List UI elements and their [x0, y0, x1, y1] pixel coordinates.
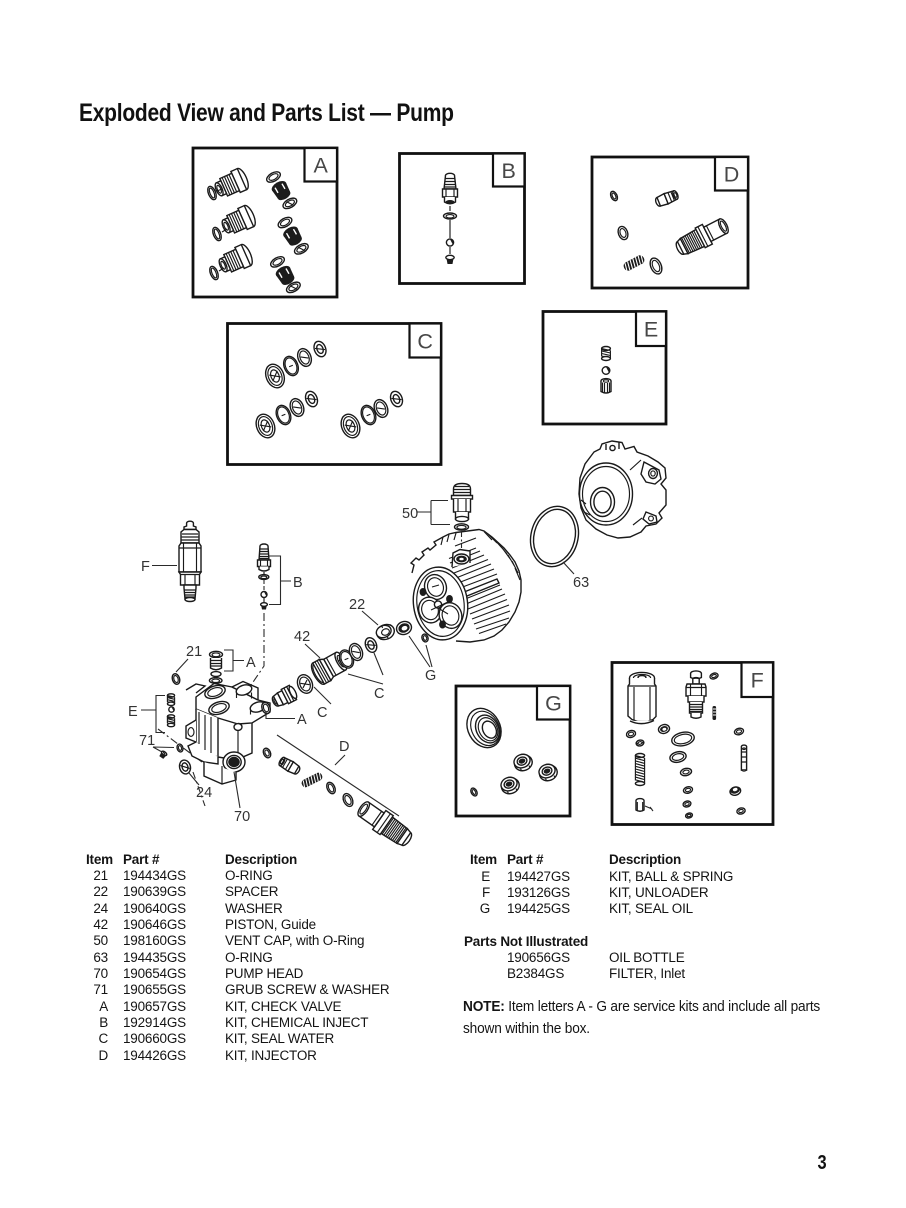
svg-text:E: E: [644, 318, 658, 342]
svg-text:A: A: [314, 154, 329, 178]
svg-text:B: B: [293, 575, 303, 591]
svg-text:50: 50: [402, 506, 418, 522]
svg-text:D: D: [724, 163, 740, 187]
svg-text:42: 42: [294, 629, 310, 645]
svg-text:A: A: [246, 655, 256, 671]
svg-text:F: F: [141, 559, 150, 575]
svg-text:C: C: [374, 686, 384, 702]
svg-text:22: 22: [349, 597, 365, 613]
svg-text:C: C: [317, 705, 327, 721]
svg-text:21: 21: [186, 644, 202, 660]
svg-text:B: B: [502, 159, 516, 183]
svg-text:70: 70: [234, 809, 250, 825]
svg-text:F: F: [751, 669, 764, 693]
svg-text:71: 71: [139, 733, 155, 749]
svg-text:24: 24: [196, 785, 212, 801]
svg-text:A: A: [297, 712, 307, 728]
svg-text:C: C: [417, 330, 433, 354]
svg-text:G: G: [545, 692, 562, 716]
svg-text:D: D: [339, 739, 349, 755]
svg-text:63: 63: [573, 575, 589, 591]
svg-text:G: G: [425, 668, 436, 684]
svg-text:E: E: [128, 704, 138, 720]
